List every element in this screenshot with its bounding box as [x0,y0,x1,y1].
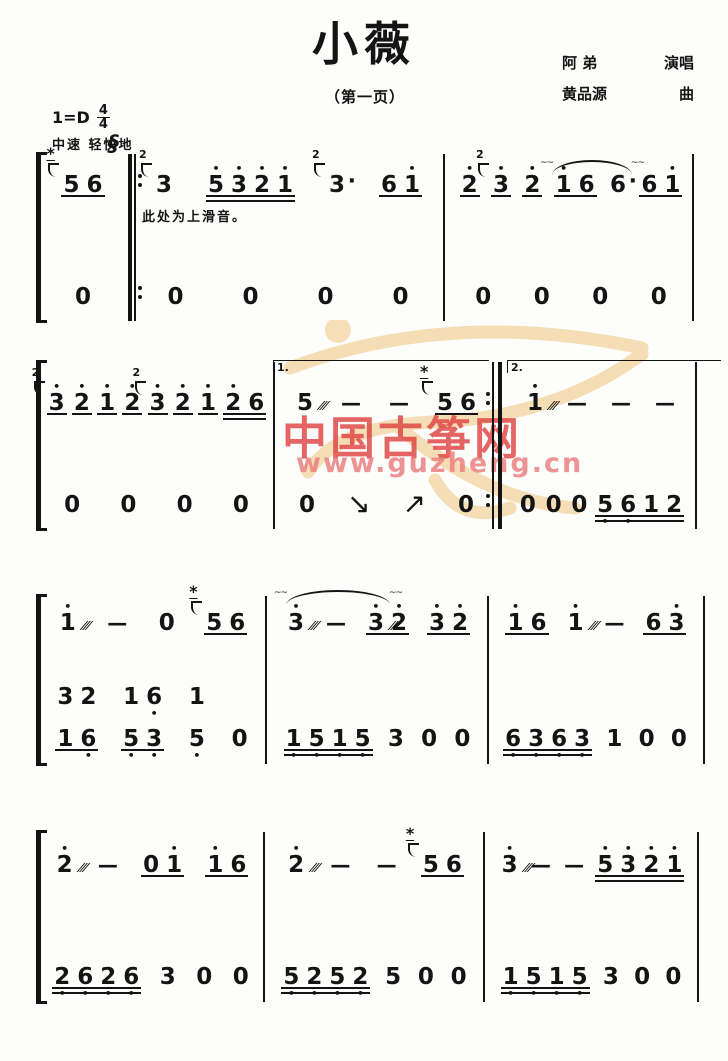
note-digit: 2 [80,685,96,709]
slide-hook-icon [141,163,152,177]
barline [483,832,485,1002]
note-digit: 1 [332,727,348,751]
note-digit: 1 [99,391,115,415]
note-digit: 2 [254,173,270,197]
measure-upper: 5 * 6 [44,158,122,206]
low-octave-dot: • [553,989,560,998]
beam-unit: 0 [73,276,93,318]
note: •2 [452,602,468,644]
beam-unit: 0 [230,718,250,760]
beam-unit: — [387,382,411,424]
note-digit: 2 [175,391,191,415]
beam-unit: — [653,382,677,424]
note: 0 [233,956,249,998]
note-digit: 3 [329,173,345,197]
beam-unit: 6 •3 [643,602,686,644]
note-digit: 6 [505,727,521,751]
low-octave-dot: • [359,751,366,760]
note-digit: 0 [458,493,474,517]
note: 0 [454,718,470,760]
note: 6 [531,602,547,644]
note-digit: 0 [232,727,248,751]
note: 0 [299,484,315,526]
note-digit: 0 [75,285,91,309]
note-digit: 1 [166,853,182,877]
beam-underline [61,195,104,197]
repeat-end-barline [498,362,502,529]
note-digit: 1 [60,611,76,635]
slide-up-icon: * [191,589,205,615]
ornament-label: 2 [133,366,141,379]
note: •1 [664,164,680,206]
note-digit: 1 [503,965,519,989]
note-digit: 0 [451,965,467,989]
note: 5 * [437,382,453,424]
note-digit: 5 [123,727,139,751]
beam-underline [223,413,266,415]
beam-unit: 0 [297,484,317,526]
beam-unit: •3 2̇ [491,164,511,206]
ornament-label: * [46,144,54,163]
note: 6 [446,844,462,886]
low-octave-dot: • [579,751,586,760]
measure-upper: •3 /// — •3 ///•2 •3 •2 [277,596,479,644]
note-digit: 6 [381,173,397,197]
note: 6 [229,602,245,644]
beam-unit: 1• 5• 1• 5• [284,718,373,760]
beam-underline [421,875,464,877]
dash-sustain: — [655,391,675,415]
note-digit: 6 [531,611,547,635]
beam-unit: 0 [669,718,689,760]
volta-label: 1. [277,361,289,374]
chord: 3 1 [57,676,73,760]
tremolo-icon: /// [307,619,321,632]
beam-unit: 3 [386,718,406,760]
beam-underline [141,875,184,877]
tremolo-icon: /// [546,399,560,412]
note-digit: 0 [639,727,655,751]
note: 0 [64,484,80,526]
note: •1 [99,382,115,424]
low-octave-dot: • [105,989,112,998]
repeat-begin-barline [128,154,132,321]
note-digit: 2 [452,611,468,635]
beam-unit: 3 1 2 6• [55,676,98,760]
credits-block: 阿 弟 演唱 黄品源 曲 [562,52,694,114]
note: 0 [634,956,650,998]
beam-unit: — [96,844,120,886]
note-digit: 5 [208,173,224,197]
key-signature: 1=D 4 4 [52,104,110,131]
beam-unit: 0 [416,956,436,998]
beam-unit: — [529,844,553,886]
note: 3• [146,718,162,760]
ornament-label: 2 [32,366,40,379]
chord: 1 5• [123,676,139,760]
note-digit: 3 [288,611,304,635]
slide-up-icon: * [422,369,436,395]
beam-unit: 5 * 6 [435,382,478,424]
composer-role: 曲 [679,83,694,104]
beam-unit: 3 2· [327,164,347,206]
dash-sustain: — [567,391,587,415]
barline [703,596,705,764]
beam-unit: 1 5• 6• 3• [121,676,164,760]
note: 1 [57,718,73,760]
slide-hook-icon [191,601,202,615]
slide-hook-icon [408,843,419,857]
barline [443,154,445,321]
beam-unit: 0 [532,276,552,318]
beam-unit: — [324,602,348,644]
ornament-label: 2 [312,148,320,161]
note-digit: 5 [572,965,588,989]
note: •3 /// [368,602,384,644]
beam-unit: 5 * 6 [61,164,104,206]
note-digit: 2 [391,611,407,635]
note-digit: 1 [200,391,216,415]
beam-unit: •3 2 [148,382,168,424]
beam-unit: 0 [473,276,493,318]
beam-underline [206,195,295,197]
note-digit: 3 [574,727,590,751]
note: 5 [385,956,401,998]
beam-unit: 0 [518,484,538,526]
augmentation-dot-icon: · [629,169,637,194]
beam-unit: 0 [240,276,260,318]
low-octave-dot: • [556,751,563,760]
beam-underline [460,195,480,197]
note-digit: 2 [57,853,73,877]
measure-upper: •1 /// — 0 5 * 6 [44,596,261,644]
note-digit: 6 [123,965,139,989]
note: 0 [475,276,491,318]
slide-hook-icon [34,381,45,395]
beam-unit: — [565,382,589,424]
measure-upper: •2 /// — 0 •1 •1 6 [44,838,259,886]
note-digit: 1 [404,173,420,197]
low-octave-dot: • [151,751,158,760]
note-digit: 0 [299,493,315,517]
note: •2 [175,382,191,424]
slide-up-icon: 2 [135,369,149,395]
beam-unit: •3 ///•2 [366,602,409,644]
note-digit: 1 [664,173,680,197]
low-octave-dot: • [510,751,517,760]
beam-underline [47,413,67,415]
note: 0 [75,276,91,318]
note: 0 [232,718,248,760]
slide-up-icon: 2̇ [478,151,492,177]
beam-underline [595,880,684,882]
note-digit: 5 [63,173,79,197]
note-digit: 1 [549,965,565,989]
dash-sustain: — [107,611,127,635]
barline [263,832,265,1002]
beam-unit: ↗ [400,482,427,526]
glissando-arrow-icon: ↗ [402,491,425,517]
note-digit: 5 [526,965,542,989]
note: •1 [404,164,420,206]
note: •3 2 [150,382,166,424]
note: •1 [207,844,223,886]
note: •1 /// [567,602,583,644]
dash-sustain: — [564,853,584,877]
note-digit: 2 [54,965,70,989]
note: 6 [641,164,657,206]
performer-role: 演唱 [664,52,694,73]
note-digit: 0 [634,965,650,989]
beam-unit: •1 /// [58,602,78,644]
note-digit: 5 [206,611,222,635]
slide-hook-icon [314,163,325,177]
note-digit: 1 [606,727,622,751]
note: — [341,382,361,424]
note-digit: 3 [49,391,65,415]
beam-unit: •3 /// [286,602,306,644]
beam-unit: •1 /// [525,382,545,424]
note-digit: 2 [74,391,90,415]
beam-underline [639,195,682,197]
beam-unit: 1• 5• 1• 5• [501,956,590,998]
note-digit: 0 [418,965,434,989]
beam-unit: 0 [62,484,82,526]
note: •2 /// [57,844,73,886]
volta-bracket: 1. [273,360,489,373]
low-octave-dot: • [193,751,200,760]
note: 5 * [63,164,79,206]
note: 6 · [610,164,626,206]
note-digit: 6 [551,727,567,751]
note-digit: 0 [64,493,80,517]
note-digit: 1 [567,611,583,635]
measure-lower: 0 0 0 0 [454,274,688,318]
measure-lower: 0 0 0 0 [138,274,438,318]
note-digit: 0 [143,853,159,877]
note-digit: 1 [57,727,73,751]
note-digit: 0 [520,493,536,517]
beam-underline [122,413,142,415]
system-4: •2 /// — 0 •1 •1 6 •2 /// — — 5 * 6 •3 /… [30,828,700,1006]
note-digit: 3 [528,727,544,751]
beam-unit: 5 [383,956,403,998]
tremolo-icon: /// [316,399,330,412]
low-octave-dot: • [290,751,297,760]
beam-unit: 5• 2• 5• 2• [281,956,370,998]
note: •1 [166,844,182,886]
low-octave-dot: • [82,989,89,998]
note-digit: 1 [286,727,302,751]
tremolo-icon: /// [586,619,600,632]
beam-underline [55,749,98,751]
note-digit: 2 [462,173,478,197]
note-digit: 0 [651,285,667,309]
dash-sustain: — [330,853,350,877]
note: 3 [57,676,73,718]
beam-unit: — [609,382,633,424]
note-digit: 3 [388,727,404,751]
note: 0 [242,276,258,318]
note: 0 [143,844,159,886]
note-digit: 6 [610,173,626,197]
note-digit: 3 [156,173,172,197]
note-digit: 0 [592,285,608,309]
note: •3 2̇ [493,164,509,206]
note: •1 [507,602,523,644]
measure-lower: 1• 5• 1• 5• 3 0 0 [495,954,689,998]
low-octave-dot: • [128,989,135,998]
beam-unit: ↘ [345,482,372,526]
beam-unit: •5 •3 •2 •1 [206,164,295,206]
beam-underline [595,875,684,877]
beam-unit: 6 •1 [639,164,682,206]
note-digit: 2 [225,391,241,415]
note-digit: 3 [429,611,445,635]
note: 0 [421,718,437,760]
low-octave-dot: • [128,751,135,760]
beam-unit: 0 [449,956,469,998]
note-digit: 1 [507,611,523,635]
note: 1 [123,676,139,718]
ornament-label: * [406,824,414,843]
ornament-label: * [420,362,428,381]
beam-unit: •2 6 [223,382,266,424]
beam-underline [505,633,548,635]
note: — [330,844,350,886]
beam-underline [503,749,592,751]
beam-underline [72,413,92,415]
beam-unit: 2• 6• 2• 6• [52,956,141,998]
beam-unit: 0 [663,956,683,998]
note-digit: 0 [233,965,249,989]
note-digit: 3 [146,727,162,751]
note: 3 [603,956,619,998]
note-digit: 6 [460,391,476,415]
note-digit: 6 [446,853,462,877]
slide-up-icon: 2 [141,151,155,177]
note-digit: 0 [120,493,136,517]
beam-underline [503,754,592,756]
note: — [604,602,624,644]
note: •2 /// [288,844,304,886]
low-octave-dot: • [334,989,341,998]
note: 3 2· [329,164,345,206]
measure-lower: 3 1 2 6• 1 5• 6• 3• 1 5• 0 [44,686,261,760]
note: 6 [87,164,103,206]
beam-unit: •2 /// [286,844,306,886]
beam-unit: 5 * 6 [421,844,464,886]
beam-unit: •2 /// [55,844,75,886]
beam-unit: 0 [452,718,472,760]
time-numerator: 4 [97,104,110,118]
low-octave-dot: • [313,751,320,760]
tremolo-icon: /// [307,861,321,874]
note: 0 [196,956,212,998]
beam-underline [198,413,218,415]
note-digit: 0 [159,611,175,635]
measure-lower: 1• 5• 1• 5• 3 0 0 [277,686,479,760]
ornament-label: 2 [139,148,147,161]
chord: 1 5• [189,676,205,760]
note: ↗ [402,482,425,526]
note: 0 [120,484,136,526]
beam-unit: 6 · [608,164,628,206]
beam-unit: •2 [522,164,542,206]
note: 5• [189,718,205,760]
note-digit: 5 [189,727,205,751]
beam-underline [223,418,266,420]
note: 0 [167,276,183,318]
beam-underline [173,413,193,415]
beam-unit: — [328,844,352,886]
low-octave-dot: • [288,989,295,998]
beam-unit: 0 [419,718,439,760]
low-octave-dot: • [357,989,364,998]
beam-unit: — [339,382,363,424]
time-denominator: 4 [97,118,110,131]
measure-lower: 5• 2• 5• 2• 5 0 0 [275,954,475,998]
note-digit: 5 [309,727,325,751]
low-octave-dot: • [507,989,514,998]
low-octave-dot: • [625,517,632,526]
barline [695,362,697,529]
note: 0 [458,484,474,526]
note: 0 [233,484,249,526]
beam-underline [206,200,295,202]
key-value: 1=D [52,108,90,127]
note: 6• [80,718,96,760]
note: 0 [418,956,434,998]
time-signature: 4 4 [97,104,110,131]
barline [273,362,275,529]
note-digit: 0 [454,727,470,751]
measure-lower: 0 0 0 5• 6• 1 2 [515,482,687,526]
beam-unit: 5 /// [295,382,315,424]
beam-unit: 0 [175,484,195,526]
note-digit: 2 [666,493,682,517]
beam-unit: 6• 3• 6• 3• [503,718,592,760]
dash-sustain: — [611,391,631,415]
slide-up-icon: * [48,151,62,177]
note-digit: 0 [546,493,562,517]
dash-sustain: — [341,391,361,415]
note-digit: 0 [421,727,437,751]
beam-unit: 1 5• [187,676,207,760]
beam-underline [522,195,542,197]
beam-underline [121,749,164,751]
beam-unit: 5• 6• 1 2 [595,484,684,526]
beam-unit: 0 [569,484,589,526]
dash-sustain: — [389,391,409,415]
note: 0 [639,718,655,760]
composer-name: 黄品源 [562,83,607,104]
note: 6 [645,602,661,644]
beam-unit: 0 [637,718,657,760]
chord: 6• 3• [146,676,162,760]
note-digit: 1 [556,173,572,197]
note: 0 [671,718,687,760]
note-digit: 1 [527,391,543,415]
beam-unit: 0 [315,276,335,318]
beam-underline [284,749,373,751]
note-digit: 2 [288,853,304,877]
note: 5 /// [297,382,313,424]
dash-sustain: — [531,853,551,877]
beam-underline [595,520,684,522]
beam-underline [366,633,409,635]
note-digit: 3 [620,853,636,877]
